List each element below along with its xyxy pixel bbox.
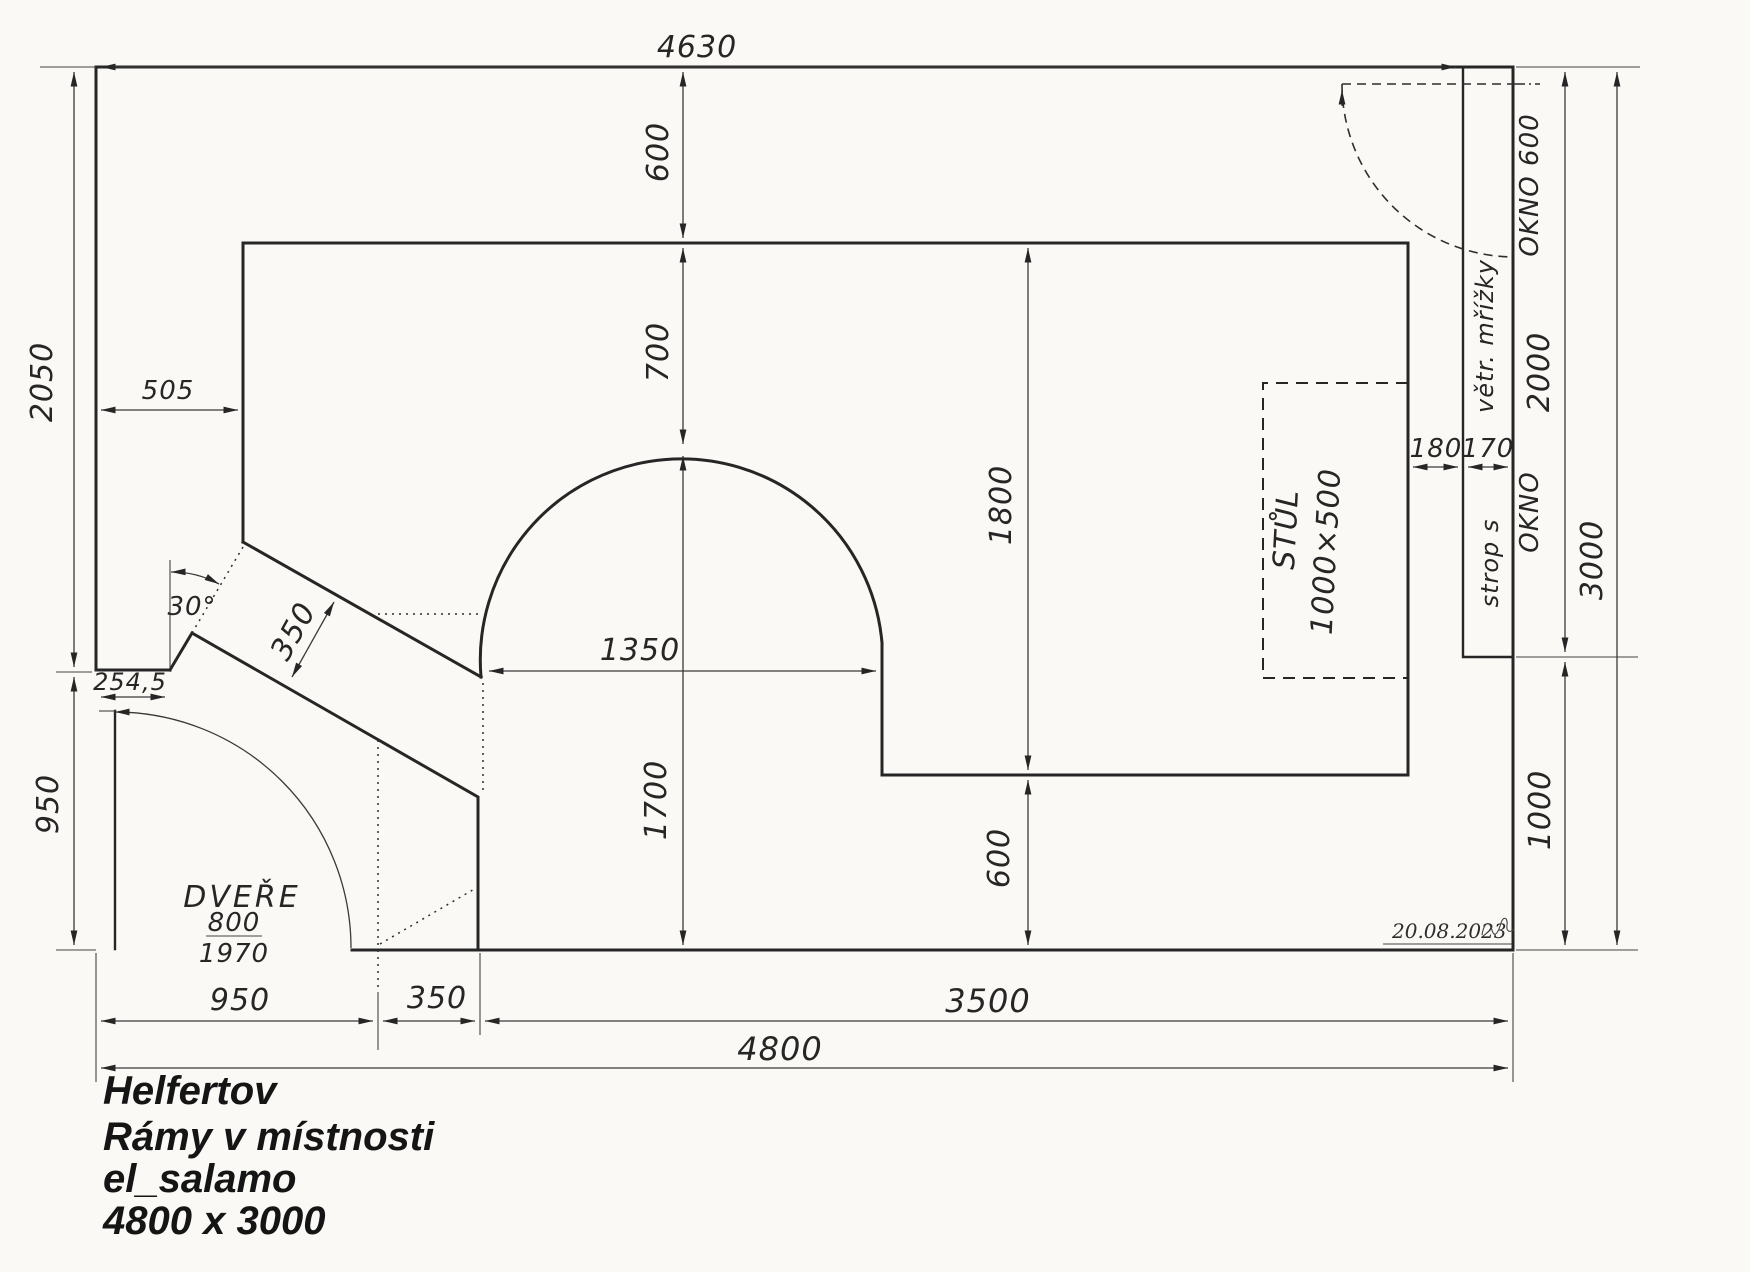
wall-left-with-jog	[96, 67, 170, 670]
dim-254-label: 254,5	[93, 668, 167, 696]
dim-600-bottom-label: 600	[982, 828, 1017, 888]
dim-1700-label: 1700	[639, 760, 674, 840]
signature: 20.08.2023	[1391, 918, 1514, 943]
table-label: STŮL	[1265, 489, 1306, 571]
dim-4800-label: 4800	[737, 1030, 822, 1068]
scanned-floor-plan-page: 4630 600 700 1700 1350 505 254,5 30° 350…	[0, 0, 1750, 1272]
dimension-lines	[74, 67, 1617, 1068]
window-swing-arc	[1342, 84, 1513, 257]
dim-600-top-label: 600	[641, 122, 676, 182]
dim-700-label: 700	[641, 322, 676, 382]
vent-grilles-label: větr. mřížky	[1471, 259, 1499, 413]
dim-angle-arc	[171, 572, 219, 584]
dim-angle-label: 30°	[167, 592, 216, 622]
dim-3000-label: 3000	[1575, 520, 1610, 600]
dim-950-left-label: 950	[31, 774, 66, 834]
title-block: Helfertov Rámy v místnosti el_salamo 480…	[102, 1069, 435, 1243]
door-height-label: 1970	[199, 939, 269, 969]
dim-3500-label: 3500	[945, 982, 1030, 1020]
title-line-project: Helfertov	[103, 1069, 279, 1113]
window-swing-dashed	[1342, 84, 1540, 257]
dim-350-bottom-label: 350	[407, 981, 467, 1016]
dim-505-label: 505	[142, 376, 195, 406]
frame-semicircle-arch	[480, 459, 882, 677]
window-top-label: OKNO 600	[1515, 113, 1545, 256]
table-size-label: 1000×500	[1305, 467, 1349, 635]
dim-1350-label: 1350	[600, 633, 680, 668]
dim-2000-label: 2000	[1522, 332, 1557, 412]
title-line-size: 4800 x 3000	[102, 1199, 325, 1243]
dim-2050-label: 2050	[25, 342, 60, 422]
floor-plan-drawing: 4630 600 700 1700 1350 505 254,5 30° 350…	[0, 0, 1750, 1272]
dim-1000-label: 1000	[1523, 770, 1558, 850]
dim-1800-label: 1800	[984, 465, 1019, 545]
dim-350-band-label: 350	[264, 597, 324, 667]
dim-170-label: 170	[1462, 434, 1515, 464]
door-width-label: 800	[208, 908, 261, 938]
title-line-subject: Rámy v místnosti	[103, 1115, 435, 1159]
window-side-label: OKNO	[1515, 471, 1545, 552]
frame-outline	[243, 243, 1408, 775]
dim-4630-label: 4630	[657, 30, 737, 65]
floor-diagonal-dotted	[380, 888, 476, 944]
dim-180-label: 180	[1410, 434, 1463, 464]
dim-950-bottom-label: 950	[210, 983, 270, 1018]
ceiling-label: strop s	[1476, 519, 1504, 608]
inner-frame	[170, 243, 1408, 950]
title-line-author: el_salamo	[103, 1157, 296, 1201]
signature-date: 20.08.2023	[1391, 919, 1507, 943]
